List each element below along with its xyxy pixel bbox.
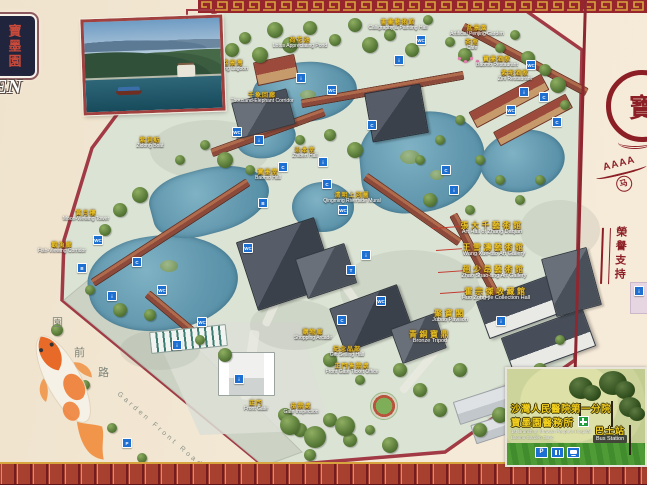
tree [393, 363, 407, 377]
tree [348, 18, 362, 32]
map-label: 正門Front Gate [244, 401, 268, 413]
map-label: 寶墨堂Baomo Hall [255, 170, 281, 182]
clinic-name-line1: 沙灣人民醫院第一分院 [511, 401, 611, 415]
photo-pavilion [177, 65, 195, 78]
green-cross-icon [578, 416, 589, 427]
legend-facility-icon: i [634, 286, 644, 296]
tree [515, 195, 525, 205]
flower-dot [464, 60, 467, 63]
tree [347, 142, 363, 158]
info-icon: i [172, 340, 182, 350]
tree [365, 425, 375, 435]
toilet-icon: WC [526, 60, 536, 70]
tree [252, 47, 268, 63]
toilet-icon: WC [376, 296, 386, 306]
map-label: 霍宗傑收藏館Huo Zong-jie Collection Hall [462, 288, 530, 302]
map-label: 聚寶閣Jubao Pavilion [432, 310, 468, 324]
tree [303, 21, 317, 35]
boat-icon: B [77, 263, 87, 273]
tree [113, 203, 127, 217]
info-icon: i [234, 374, 244, 384]
map-label: 正門售票處Front Gate Ticket Office [326, 364, 379, 376]
emblem-character: 寶 [629, 88, 647, 125]
bus-station-label-en: Bus Station [593, 435, 627, 443]
flower-dot [458, 57, 461, 60]
photo-icon: C [539, 92, 549, 102]
tree [144, 309, 156, 321]
map-label: 青銅寶鼎Bronze Tripod [409, 331, 451, 345]
tree [445, 37, 455, 47]
info-icon: i [496, 316, 506, 326]
fountain-roundabout [370, 392, 398, 420]
inset-facility-icon-row: P [535, 447, 580, 458]
tree [324, 129, 336, 141]
toilet-icon: WC [232, 127, 242, 137]
map-label: 檢票處Gate Inspection [283, 404, 318, 416]
map-label: 治本堂Zhiben Hall [292, 148, 317, 160]
map-label: 紀念品部Gift Selling Hall [330, 347, 364, 359]
tree [335, 416, 355, 436]
lake-photo-inset [80, 15, 225, 116]
ground-texture [520, 200, 600, 260]
toilet-icon: WC [243, 243, 253, 253]
info-icon: i [318, 157, 328, 167]
info-icon: i [254, 135, 264, 145]
toilet-icon: WC [416, 35, 426, 45]
toilet-icon: WC [506, 105, 516, 115]
map-label: 寶墨酒家Baomo Restaurant [476, 57, 518, 69]
map-label: 盆景園Artificial Penjing Garden [450, 26, 504, 38]
plaque-characters: 寶墨園 [5, 24, 24, 69]
photo-icon: C [132, 257, 142, 267]
building-dark [364, 83, 429, 142]
toilet-icon: WC [327, 85, 337, 95]
tree [329, 34, 341, 46]
tree [362, 37, 378, 53]
map-label: 觀魚廊Fish-Viewing Corridor [38, 243, 86, 255]
map-label: 王雪濤藝術館Wang Xue-tao Art Gallery [463, 244, 526, 258]
photo-boat [116, 86, 142, 96]
tea-icon: T [346, 265, 356, 275]
tree [382, 437, 398, 453]
tree [535, 175, 545, 185]
photo-icon: C [552, 117, 562, 127]
photo-icon: C [441, 165, 451, 175]
info-icon: i [519, 87, 529, 97]
park-map-signboard: WCiCBWCiCWCiTWCCiWCCiWCCiWCiCWCBiCWCiWCi… [0, 0, 647, 485]
tree [560, 100, 570, 110]
tree [555, 335, 565, 345]
tree [225, 43, 239, 57]
tree [455, 115, 465, 125]
toilet-icon: WC [157, 285, 167, 295]
tree [495, 43, 505, 53]
tree [132, 187, 148, 203]
map-label: 千象回廊Thousand-Elephant Corridor [230, 93, 293, 105]
tree [175, 155, 185, 165]
tree [465, 205, 475, 215]
clinic-bus-inset: 沙灣人民醫院第一分院 寶墨園醫務所 1st Branch of Shawan P… [505, 367, 647, 467]
top-meander-border [198, 0, 647, 13]
info-icon: i [296, 73, 306, 83]
legend-card: i [630, 282, 647, 314]
tree [413, 383, 427, 397]
map-label: 趙少昂藝術館Zhao Shao-ang Art Gallery [461, 266, 526, 280]
map-label: 張大千藝術館Art Hall of Zhang Daqian [461, 222, 524, 236]
map-label: 荷花池Lotus Appreciating Pond [273, 38, 327, 50]
flower-dot [470, 57, 473, 60]
clinic-name-english: 1st Branch of Shawan People's Hospital B… [511, 429, 591, 441]
tree [195, 335, 205, 345]
emblem-flourish [618, 136, 647, 149]
boat-icon: B [258, 198, 268, 208]
tree [217, 152, 233, 168]
parking-icon: P [535, 447, 548, 458]
tree [200, 140, 210, 150]
map-label: 賞月樓Moon-Viewing Tower [63, 211, 109, 223]
tree [415, 155, 425, 165]
map-label: 紫坭酒家Zini Restaurant [498, 71, 532, 83]
tree [355, 375, 365, 385]
koi-fish-illustration [8, 298, 128, 478]
map-label: 書畫藝術館Calligraphy & Painting Hall [368, 20, 427, 32]
tree [539, 64, 551, 76]
tree [495, 175, 505, 185]
garden-name-plaque: 寶墨園 [0, 14, 37, 78]
photo-icon: C [367, 120, 377, 130]
tree [295, 135, 305, 145]
toilet-icon: WC [93, 235, 103, 245]
garden-name-english-fragment: EN [0, 76, 22, 99]
tree [453, 363, 467, 377]
photo-water [85, 76, 222, 113]
tree [510, 30, 520, 40]
tree [423, 193, 437, 207]
photo-icon: C [322, 179, 332, 189]
tree [239, 32, 251, 44]
tree [280, 415, 300, 435]
info-icon: i [394, 55, 404, 65]
tree [435, 135, 445, 145]
tree [405, 43, 419, 57]
honor-vertical-text: 榮譽支持 [611, 226, 629, 283]
map-label: 茶室Cafe [465, 40, 479, 52]
restaurant-icon [551, 447, 564, 458]
toilet-icon: WC [197, 317, 207, 327]
tree [433, 403, 447, 417]
tree [218, 348, 232, 362]
map-label: 紫洞舫Zidong Boat [137, 138, 164, 150]
clinic-name-line2: 寶墨園醫務所 [511, 415, 589, 429]
info-icon: i [449, 185, 459, 195]
bus-icon [567, 447, 580, 458]
toilet-icon: WC [338, 205, 348, 215]
tree [475, 155, 485, 165]
info-icon: i [361, 250, 371, 260]
tree [473, 423, 487, 437]
photo-icon: C [337, 315, 347, 325]
tree [304, 426, 326, 448]
tree [245, 165, 255, 175]
map-label: 購物廊Shopping Arcade [294, 330, 332, 342]
tree [304, 449, 316, 461]
lake-island [160, 260, 178, 272]
label-leader-line [436, 248, 462, 251]
map-label: 清明上河圖Qingming Riverside Mural [323, 193, 381, 205]
tree [267, 22, 283, 38]
tree [550, 77, 566, 93]
tree [85, 285, 95, 295]
